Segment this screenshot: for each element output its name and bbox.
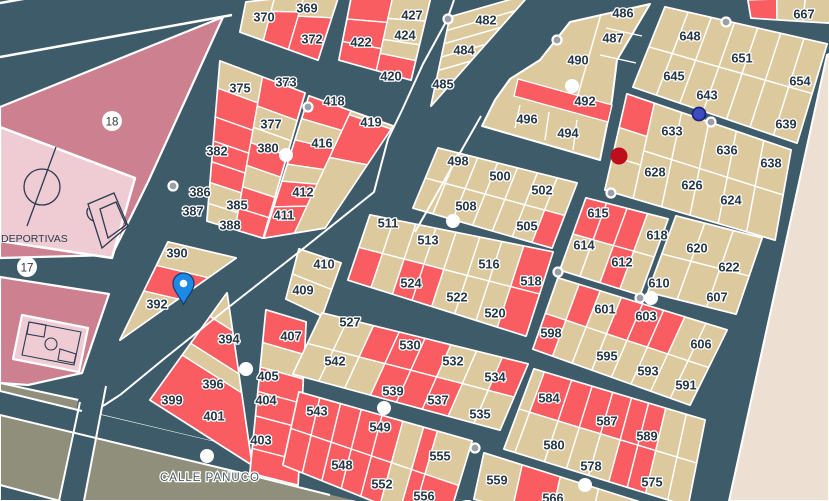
svg-text:530: 530 <box>399 338 420 353</box>
svg-text:409: 409 <box>292 283 313 298</box>
svg-text:370: 370 <box>253 10 274 25</box>
svg-text:484: 484 <box>453 43 475 58</box>
svg-text:638: 638 <box>760 156 781 171</box>
svg-text:487: 487 <box>602 31 623 46</box>
svg-text:419: 419 <box>360 115 381 130</box>
svg-text:645: 645 <box>663 69 684 84</box>
svg-text:373: 373 <box>275 75 296 90</box>
svg-text:516: 516 <box>478 257 499 272</box>
svg-text:591: 591 <box>675 378 696 393</box>
svg-text:396: 396 <box>202 377 223 392</box>
svg-text:522: 522 <box>446 290 467 305</box>
svg-text:518: 518 <box>520 274 541 289</box>
svg-text:612: 612 <box>611 255 632 270</box>
svg-text:372: 372 <box>301 32 322 47</box>
svg-text:648: 648 <box>679 29 700 44</box>
svg-text:390: 390 <box>166 246 187 261</box>
svg-text:606: 606 <box>690 337 711 352</box>
svg-text:494: 494 <box>557 126 579 141</box>
svg-text:535: 535 <box>469 407 490 422</box>
svg-text:532: 532 <box>442 354 463 369</box>
svg-text:411: 411 <box>274 208 295 223</box>
svg-text:534: 534 <box>484 370 506 385</box>
svg-text:412: 412 <box>292 185 313 200</box>
svg-text:552: 552 <box>371 477 392 492</box>
svg-text:498: 498 <box>447 154 468 169</box>
svg-text:422: 422 <box>350 35 371 50</box>
svg-text:496: 496 <box>516 112 537 127</box>
svg-text:575: 575 <box>641 475 662 490</box>
svg-text:527: 527 <box>339 315 360 330</box>
svg-text:589: 589 <box>636 429 657 444</box>
svg-text:405: 405 <box>257 369 278 384</box>
svg-text:399: 399 <box>161 393 182 408</box>
svg-text:508: 508 <box>455 199 476 214</box>
svg-text:394: 394 <box>218 332 240 347</box>
svg-text:385: 385 <box>226 198 247 213</box>
svg-text:377: 377 <box>260 117 281 132</box>
svg-text:382: 382 <box>206 144 227 159</box>
svg-text:539: 539 <box>382 384 403 399</box>
svg-text:392: 392 <box>146 297 167 312</box>
svg-text:387: 387 <box>182 204 203 219</box>
svg-text:615: 615 <box>587 206 608 221</box>
svg-text:380: 380 <box>257 141 278 156</box>
svg-text:595: 595 <box>596 349 617 364</box>
svg-text:578: 578 <box>580 459 601 474</box>
svg-text:618: 618 <box>646 228 667 243</box>
svg-text:614: 614 <box>573 238 595 253</box>
svg-text:418: 418 <box>323 94 344 109</box>
svg-text:584: 584 <box>538 391 560 406</box>
svg-text:537: 537 <box>427 393 448 408</box>
svg-text:420: 420 <box>380 69 401 84</box>
svg-text:403: 403 <box>250 433 271 448</box>
svg-text:593: 593 <box>637 364 658 379</box>
svg-text:486: 486 <box>612 6 633 21</box>
svg-text:520: 520 <box>484 306 505 321</box>
svg-text:548: 548 <box>331 458 352 473</box>
svg-text:17: 17 <box>21 263 34 275</box>
svg-text:624: 624 <box>720 193 742 208</box>
svg-text:513: 513 <box>417 233 438 248</box>
svg-text:386: 386 <box>189 185 210 200</box>
svg-text:18: 18 <box>106 117 119 129</box>
svg-text:620: 620 <box>686 241 707 256</box>
svg-text:502: 502 <box>531 183 552 198</box>
svg-text:505: 505 <box>516 219 537 234</box>
svg-text:607: 607 <box>706 290 727 305</box>
svg-text:410: 410 <box>313 257 334 272</box>
svg-text:610: 610 <box>648 276 669 291</box>
svg-text:622: 622 <box>718 260 739 275</box>
svg-text:549: 549 <box>369 420 390 435</box>
svg-text:492: 492 <box>574 94 595 109</box>
svg-text:511: 511 <box>378 216 399 231</box>
svg-text:643: 643 <box>696 88 717 103</box>
svg-text:424: 424 <box>394 28 416 43</box>
svg-text:639: 639 <box>775 117 796 132</box>
svg-text:556: 556 <box>413 489 434 501</box>
svg-text:500: 500 <box>489 169 510 184</box>
svg-text:580: 580 <box>543 438 564 453</box>
svg-text:543: 543 <box>306 404 327 419</box>
svg-text:485: 485 <box>432 77 453 92</box>
svg-text:416: 416 <box>311 136 332 151</box>
svg-text:587: 587 <box>596 414 617 429</box>
svg-text:427: 427 <box>401 8 422 23</box>
svg-text:566: 566 <box>542 491 563 501</box>
svg-text:667: 667 <box>793 7 814 22</box>
svg-text:369: 369 <box>296 1 317 16</box>
svg-text:633: 633 <box>661 124 682 139</box>
svg-text:388: 388 <box>219 218 240 233</box>
svg-text:DEPORTIVAS: DEPORTIVAS <box>1 233 68 245</box>
svg-text:651: 651 <box>731 51 752 66</box>
svg-text:601: 601 <box>594 302 615 317</box>
svg-text:375: 375 <box>229 81 250 96</box>
svg-text:555: 555 <box>429 449 450 464</box>
svg-text:598: 598 <box>540 326 561 341</box>
svg-text:603: 603 <box>635 309 656 324</box>
svg-text:404: 404 <box>255 393 277 408</box>
svg-text:654: 654 <box>789 74 811 89</box>
svg-text:CALLE PANUCO: CALLE PANUCO <box>160 472 260 484</box>
svg-text:490: 490 <box>567 53 588 68</box>
svg-text:482: 482 <box>475 13 496 28</box>
svg-text:401: 401 <box>203 409 224 424</box>
svg-text:542: 542 <box>324 354 345 369</box>
svg-text:407: 407 <box>280 329 301 344</box>
svg-text:636: 636 <box>716 143 737 158</box>
svg-text:524: 524 <box>400 276 422 291</box>
svg-text:559: 559 <box>486 473 507 488</box>
svg-text:626: 626 <box>681 178 702 193</box>
svg-text:628: 628 <box>644 165 665 180</box>
